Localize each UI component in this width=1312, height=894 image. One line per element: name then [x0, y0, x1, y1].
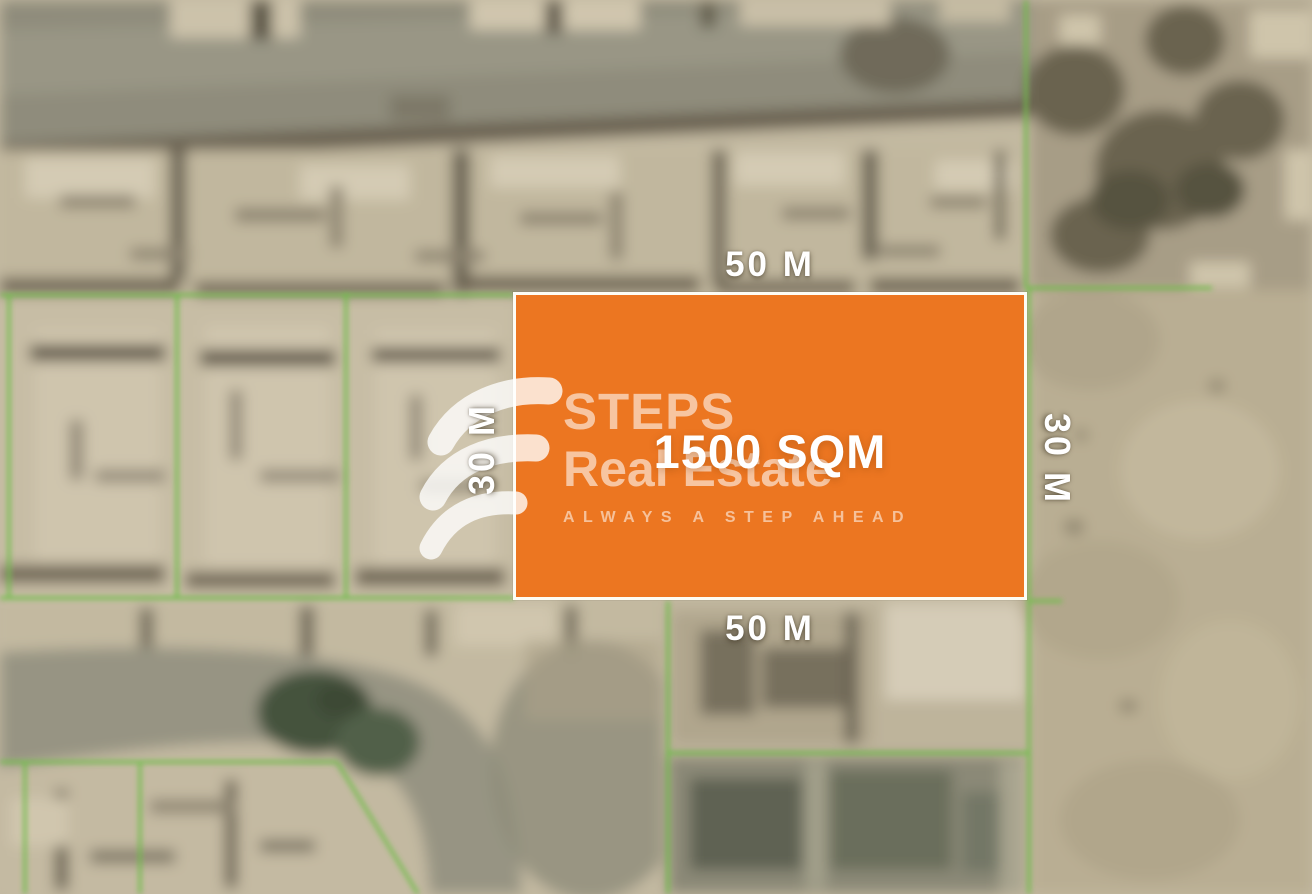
listing-image: STEPS Real Estate ALWAYS A STEP AHEAD 15… [0, 0, 1312, 894]
dimension-label-left: 30 M [463, 379, 501, 519]
plot-area-label: 1500 SQM [513, 424, 1027, 479]
dimension-label-top: 50 M [513, 245, 1027, 285]
watermark-tagline: ALWAYS A STEP AHEAD [563, 509, 912, 527]
dimension-label-right: 30 M [1038, 389, 1076, 529]
dimension-label-bottom: 50 M [513, 609, 1027, 649]
